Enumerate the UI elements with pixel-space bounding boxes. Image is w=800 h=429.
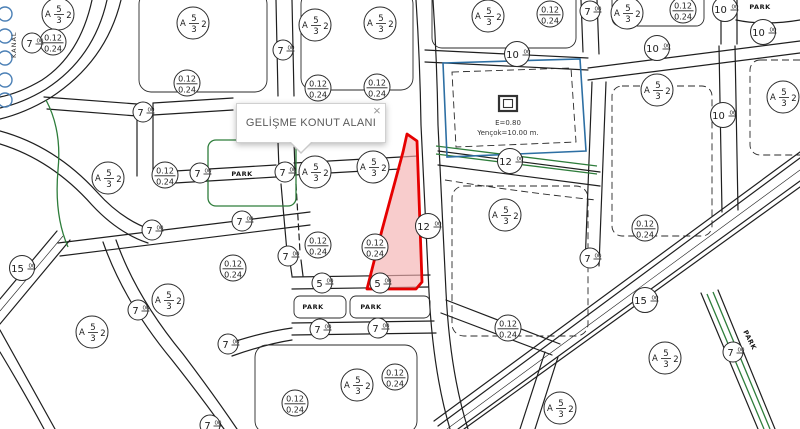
ratio-circle: 0.120.24 — [670, 0, 696, 23]
svg-text:A: A — [79, 328, 85, 338]
svg-text:2: 2 — [665, 87, 670, 97]
ratio-circle: 0.120.24 — [537, 1, 563, 27]
road-width-circle: 700 — [218, 334, 240, 354]
ratio-circle: 0.120.24 — [282, 390, 308, 416]
svg-text:12: 12 — [417, 222, 430, 233]
svg-text:0.12: 0.12 — [541, 6, 559, 15]
road-width-circle: 1000 — [713, 0, 739, 22]
svg-text:5: 5 — [313, 163, 318, 173]
ratio-circle: 0.120.24 — [220, 255, 246, 281]
tooltip-text: GELİŞME KONUT ALANI — [246, 117, 376, 129]
zoning-circle: A532 — [364, 7, 396, 39]
tooltip-close-icon[interactable]: × — [373, 104, 381, 118]
svg-text:5: 5 — [371, 158, 376, 168]
svg-text:2: 2 — [100, 329, 105, 339]
svg-text:5: 5 — [625, 4, 630, 14]
svg-text:2: 2 — [381, 164, 386, 174]
svg-text:0.24: 0.24 — [366, 250, 384, 259]
svg-text:0.24: 0.24 — [309, 91, 327, 100]
svg-text:0.12: 0.12 — [674, 2, 692, 11]
svg-text:0.12: 0.12 — [636, 220, 654, 229]
svg-text:0.24: 0.24 — [541, 17, 559, 26]
svg-text:0.24: 0.24 — [286, 406, 304, 415]
svg-text:0.24: 0.24 — [309, 248, 327, 257]
road-width-circle: 700 — [723, 342, 745, 362]
svg-text:0.24: 0.24 — [44, 45, 62, 54]
svg-text:3: 3 — [355, 387, 360, 397]
svg-text:0.24: 0.24 — [636, 231, 654, 240]
svg-text:5: 5 — [90, 323, 95, 333]
svg-text:5: 5 — [191, 14, 196, 24]
svg-text:5: 5 — [503, 206, 508, 216]
svg-text:A: A — [360, 163, 366, 173]
svg-text:2: 2 — [513, 212, 518, 222]
svg-text:A: A — [180, 19, 186, 29]
road-width-circle: 700 — [190, 163, 212, 183]
ratio-circle: 0.120.24 — [495, 315, 521, 341]
svg-text:5: 5 — [166, 291, 171, 301]
svg-text:2: 2 — [365, 382, 370, 392]
zoning-circle: A532 — [649, 342, 681, 374]
svg-text:7: 7 — [236, 217, 242, 228]
svg-text:0.12: 0.12 — [286, 395, 304, 404]
zoning-circle: A532 — [611, 0, 643, 29]
ratio-circle: 0.120.24 — [632, 215, 658, 241]
svg-text:0.12: 0.12 — [368, 79, 386, 88]
zoning-circle: A532 — [152, 284, 184, 316]
svg-text:3: 3 — [503, 217, 508, 227]
svg-text:3: 3 — [56, 16, 61, 26]
svg-text:3: 3 — [558, 410, 563, 420]
parcel-tooltip: GELİŞME KONUT ALANI × — [236, 103, 386, 143]
svg-text:7: 7 — [132, 306, 138, 317]
svg-text:A: A — [45, 10, 51, 20]
zoning-circle: A532 — [767, 81, 799, 113]
zoning-circle: A532 — [544, 392, 576, 424]
road-width-circle: 700 — [275, 162, 297, 182]
svg-text:7: 7 — [314, 325, 320, 336]
svg-text:7: 7 — [277, 46, 283, 57]
svg-text:2: 2 — [568, 405, 573, 415]
zoning-circle: A532 — [357, 151, 389, 183]
svg-text:A: A — [644, 86, 650, 96]
park-label: PARK — [360, 303, 382, 311]
ratio-circle: 0.120.24 — [382, 364, 408, 390]
ratio-circle: 0.120.24 — [362, 234, 388, 260]
park-label: PARK — [231, 170, 253, 178]
svg-text:5: 5 — [486, 7, 491, 17]
svg-text:2: 2 — [635, 10, 640, 20]
svg-text:2: 2 — [116, 175, 121, 185]
kanal-label: KANAL — [10, 31, 18, 58]
svg-text:5: 5 — [313, 16, 318, 26]
zoning-circle: A532 — [76, 316, 108, 348]
svg-text:3: 3 — [486, 18, 491, 28]
svg-text:7: 7 — [137, 108, 143, 119]
building-block-icon — [499, 96, 517, 111]
road-width-circle: 1200 — [416, 214, 442, 239]
svg-text:7: 7 — [204, 421, 210, 429]
svg-text:7: 7 — [727, 348, 733, 359]
svg-text:7: 7 — [372, 324, 378, 335]
road-width-circle: 700 — [142, 220, 164, 240]
zoning-circle: A532 — [299, 156, 331, 188]
svg-text:2: 2 — [791, 94, 796, 104]
svg-text:0.24: 0.24 — [224, 271, 242, 280]
ratio-circle: 0.120.24 — [305, 232, 331, 258]
zoning-circle: A532 — [299, 9, 331, 41]
svg-text:7: 7 — [146, 226, 152, 237]
svg-text:5: 5 — [374, 279, 380, 290]
ratio-circle: 0.120.24 — [174, 70, 200, 96]
svg-text:0.24: 0.24 — [156, 178, 174, 187]
svg-text:A: A — [367, 19, 373, 29]
svg-text:12: 12 — [499, 157, 512, 168]
emsal-label: E=0.80 — [495, 119, 521, 127]
svg-text:7: 7 — [279, 168, 285, 179]
svg-text:0.24: 0.24 — [178, 86, 196, 95]
svg-text:A: A — [770, 93, 776, 103]
road-width-circle: 1000 — [711, 103, 737, 128]
svg-text:2: 2 — [673, 355, 678, 365]
zoning-circle: A532 — [641, 74, 673, 106]
svg-text:3: 3 — [625, 15, 630, 25]
svg-text:7: 7 — [584, 254, 590, 265]
svg-text:15: 15 — [11, 264, 24, 275]
ratio-circle: 0.120.24 — [152, 162, 178, 188]
svg-text:2: 2 — [323, 169, 328, 179]
road-width-circle: 1000 — [645, 36, 671, 61]
svg-text:0.12: 0.12 — [178, 75, 196, 84]
svg-text:7: 7 — [26, 39, 32, 50]
svg-text:10: 10 — [506, 50, 519, 61]
svg-text:0.24: 0.24 — [674, 13, 692, 22]
yencok-label: Yençok=10.00 m. — [476, 129, 538, 137]
road-width-circle: 700 — [232, 211, 254, 231]
svg-text:5: 5 — [355, 376, 360, 386]
svg-text:0.12: 0.12 — [499, 320, 517, 329]
svg-text:7: 7 — [282, 252, 288, 263]
svg-text:A: A — [302, 168, 308, 178]
svg-text:7: 7 — [194, 169, 200, 180]
zoning-circle: A532 — [42, 0, 74, 30]
svg-text:A: A — [344, 381, 350, 391]
svg-text:2: 2 — [388, 20, 393, 30]
svg-text:3: 3 — [663, 360, 668, 370]
svg-text:5: 5 — [316, 279, 322, 290]
svg-text:0.12: 0.12 — [156, 167, 174, 176]
svg-text:5: 5 — [558, 399, 563, 409]
road-width-circle: 700 — [133, 102, 155, 122]
svg-text:0.12: 0.12 — [224, 260, 242, 269]
zoning-circle: A532 — [489, 199, 521, 231]
svg-text:2: 2 — [323, 22, 328, 32]
road-width-circle: 700 — [273, 40, 295, 60]
svg-text:7: 7 — [222, 340, 228, 351]
svg-text:A: A — [475, 12, 481, 22]
svg-text:7: 7 — [584, 7, 590, 18]
ratio-circle: 0.120.24 — [40, 29, 66, 55]
svg-text:3: 3 — [313, 27, 318, 37]
road-width-circle: 700 — [580, 1, 602, 21]
svg-text:A: A — [302, 21, 308, 31]
svg-text:15: 15 — [634, 296, 647, 307]
svg-text:3: 3 — [378, 25, 383, 35]
svg-text:2: 2 — [176, 297, 181, 307]
svg-text:0.12: 0.12 — [44, 34, 62, 43]
svg-text:10: 10 — [752, 28, 765, 39]
svg-text:3: 3 — [191, 25, 196, 35]
zoning-map-canvas[interactable]: KANAL E=0.80 Yençok=10.00 m. A532A532A53… — [0, 0, 800, 429]
svg-text:A: A — [155, 296, 161, 306]
special-parcel[interactable]: E=0.80 Yençok=10.00 m. — [443, 59, 586, 157]
svg-text:3: 3 — [371, 169, 376, 179]
ratio-circle: 0.120.24 — [305, 75, 331, 101]
park-label: PARK — [749, 3, 771, 11]
svg-text:0.24: 0.24 — [499, 331, 517, 340]
zoning-circle: A532 — [92, 162, 124, 194]
svg-text:0.12: 0.12 — [309, 80, 327, 89]
zoning-plan-viewer: KANAL E=0.80 Yençok=10.00 m. A532A532A53… — [0, 0, 800, 429]
svg-text:10: 10 — [646, 44, 659, 55]
ratio-circle: 0.120.24 — [364, 74, 390, 100]
svg-text:3: 3 — [655, 92, 660, 102]
zoning-circle: A532 — [472, 0, 504, 32]
svg-text:A: A — [547, 404, 553, 414]
svg-text:3: 3 — [781, 99, 786, 109]
svg-text:5: 5 — [378, 14, 383, 24]
road-width-circle: 1000 — [505, 42, 531, 67]
svg-text:0.12: 0.12 — [309, 237, 327, 246]
svg-text:3: 3 — [106, 180, 111, 190]
park-label: PARK — [302, 303, 324, 311]
zoning-circle: A532 — [177, 7, 209, 39]
svg-text:0.12: 0.12 — [386, 369, 404, 378]
zoning-circle: A532 — [341, 369, 373, 401]
svg-text:3: 3 — [166, 302, 171, 312]
svg-text:A: A — [95, 174, 101, 184]
svg-text:A: A — [614, 9, 620, 19]
svg-text:A: A — [652, 354, 658, 364]
svg-text:2: 2 — [201, 20, 206, 30]
road-width-circle: 700 — [278, 246, 300, 266]
svg-text:3: 3 — [313, 174, 318, 184]
svg-text:0.24: 0.24 — [386, 380, 404, 389]
svg-text:5: 5 — [655, 81, 660, 91]
svg-text:10: 10 — [712, 111, 725, 122]
svg-text:0.12: 0.12 — [366, 239, 384, 248]
svg-text:5: 5 — [663, 349, 668, 359]
road-width-circle: 700 — [200, 415, 222, 429]
svg-text:2: 2 — [496, 13, 501, 23]
svg-text:A: A — [492, 211, 498, 221]
svg-text:2: 2 — [66, 11, 71, 21]
road-width-circle: 700 — [22, 33, 44, 53]
svg-text:0.24: 0.24 — [368, 90, 386, 99]
road-width-circle: 1500 — [10, 256, 36, 281]
road-width-circle: 700 — [368, 318, 390, 338]
road-width-circle: 1200 — [498, 149, 524, 174]
svg-text:5: 5 — [56, 5, 61, 15]
svg-text:3: 3 — [90, 334, 95, 344]
svg-text:5: 5 — [781, 88, 786, 98]
svg-text:10: 10 — [714, 5, 727, 16]
svg-text:5: 5 — [106, 169, 111, 179]
